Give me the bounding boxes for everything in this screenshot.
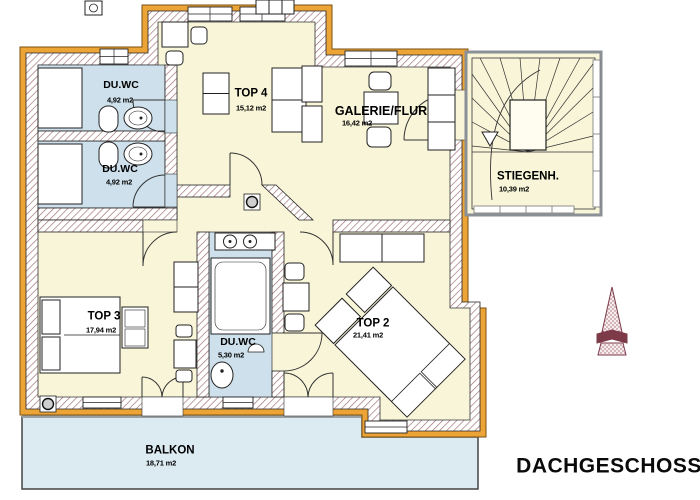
pillow-icon — [42, 337, 60, 370]
stool-icon — [176, 325, 192, 337]
table-icon — [283, 283, 309, 311]
toilet-icon — [99, 106, 118, 132]
table-icon — [174, 340, 196, 368]
floor-plan-drawing — [0, 0, 700, 500]
room-label-stiegenh: STIEGENH. — [497, 171, 559, 183]
cabinet-icon — [302, 106, 322, 142]
room-label-top3: TOP 3 — [88, 311, 121, 323]
chair-icon — [285, 314, 304, 331]
room-area-top2: 21,41 m2 — [353, 331, 383, 339]
room-label-top4: TOP 4 — [235, 88, 268, 100]
shower-icon — [38, 68, 82, 128]
stair-core — [510, 100, 546, 150]
floor-title: DACHGESCHOSS — [516, 456, 700, 477]
room-label-top2: TOP 2 — [357, 318, 390, 330]
room-area-stiegenh: 10,39 m2 — [499, 185, 529, 193]
column-icon — [43, 399, 54, 410]
chimney-icon — [256, 0, 294, 14]
floor-plan-page: DU.WC 4,92 m2 DU.WC 4,92 m2 TOP 4 15,12 … — [0, 0, 700, 500]
chair-icon — [166, 51, 183, 65]
room-label-galerie: GALERIE/FLUR — [335, 105, 427, 118]
room-area-balkon: 18,71 m2 — [146, 459, 176, 467]
shelf-icon — [428, 68, 455, 150]
shower-icon — [38, 144, 82, 204]
chair-icon — [369, 72, 391, 90]
room-area-duwc-3: 5,30 m2 — [218, 351, 244, 359]
toilet-icon — [211, 362, 233, 388]
chair-icon — [191, 27, 207, 44]
room-label-balkon: BALKON — [145, 445, 194, 457]
room-area-duwc-1: 4,92 m2 — [107, 96, 133, 104]
spire-icon — [597, 287, 627, 355]
cabinet-icon — [302, 66, 322, 102]
room-label-duwc-2: DU.WC — [102, 164, 138, 175]
pillow-icon — [42, 300, 60, 334]
column-icon — [247, 197, 258, 208]
stair-tower — [466, 52, 601, 215]
room-area-top3: 17,94 m2 — [86, 326, 116, 334]
desk-icon — [162, 22, 188, 47]
room-label-duwc-1: DU.WC — [103, 80, 139, 91]
stool-icon — [176, 370, 192, 382]
room-area-top4: 15,12 m2 — [236, 104, 266, 112]
chair-icon — [367, 127, 391, 147]
chair-icon — [285, 263, 304, 280]
room-area-duwc-2: 4,92 m2 — [106, 178, 132, 186]
room-area-galerie: 16,42 m2 — [342, 119, 372, 127]
room-label-duwc-3: DU.WC — [220, 337, 256, 348]
